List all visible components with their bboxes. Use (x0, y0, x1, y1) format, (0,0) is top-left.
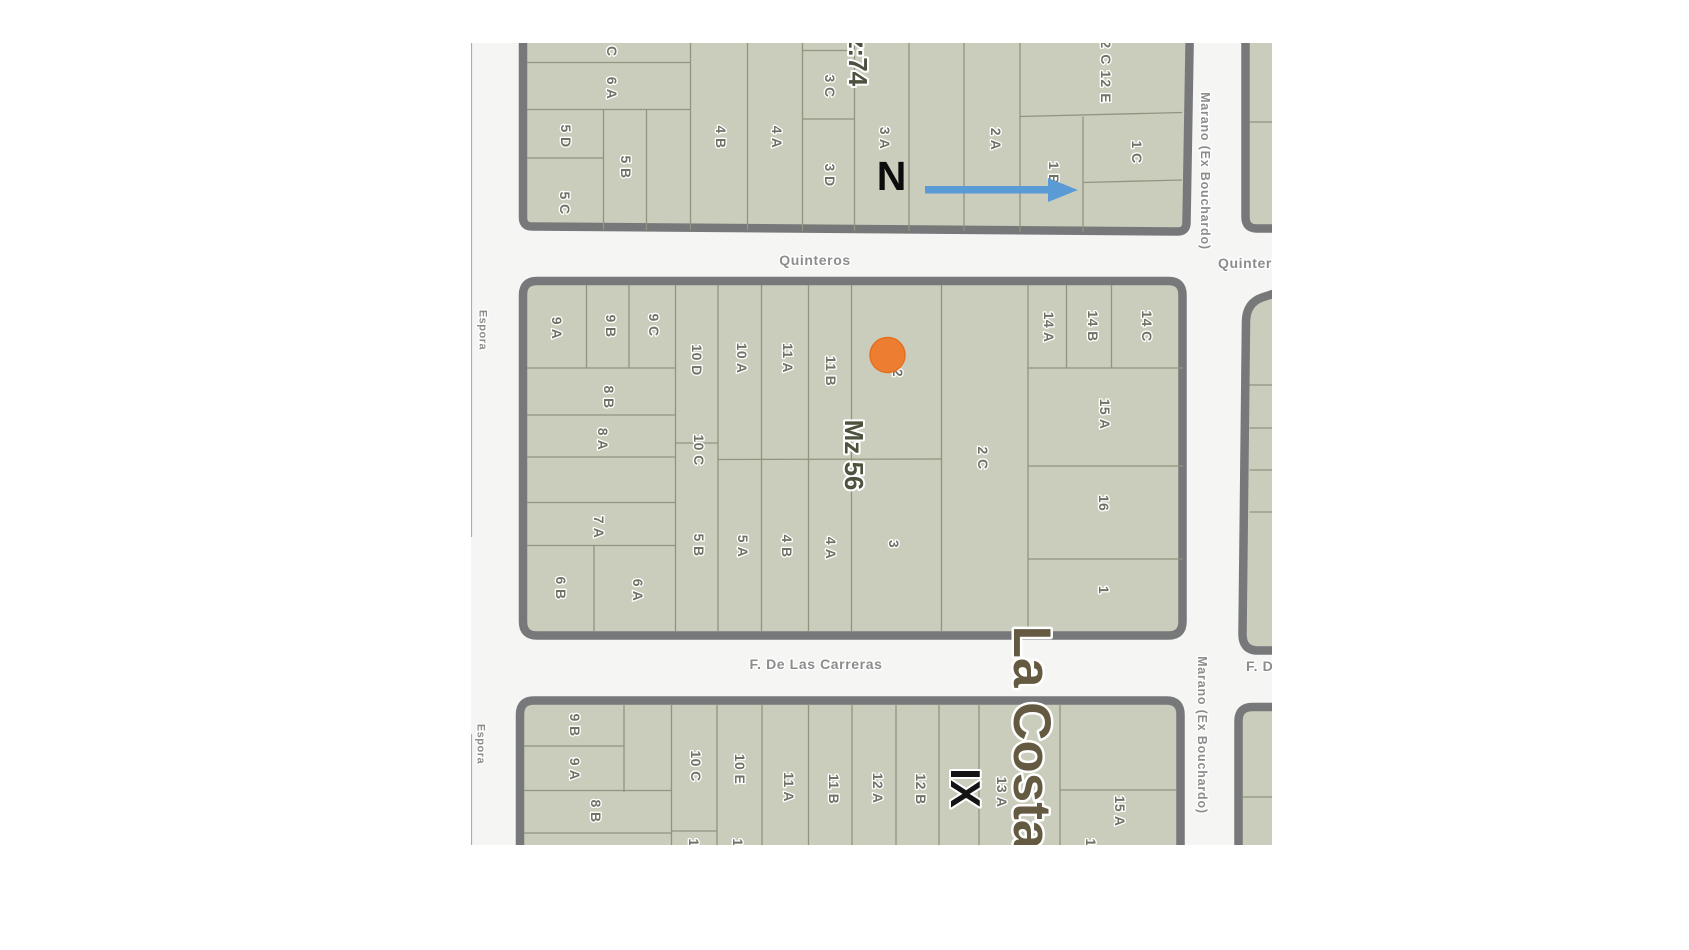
svg-text:5 C: 5 C (557, 192, 573, 215)
svg-text:Marano (Ex Bouchardo): Marano (Ex Bouchardo) (1195, 656, 1209, 814)
svg-text:10 D: 10 D (689, 344, 705, 375)
svg-text:12 A: 12 A (870, 773, 886, 804)
svg-text:5 A: 5 A (735, 535, 751, 557)
svg-text:5 B: 5 B (618, 156, 634, 179)
svg-text:11 B: 11 B (823, 356, 839, 386)
svg-text:14 B: 14 B (1085, 310, 1101, 341)
svg-text:3 C: 3 C (822, 75, 838, 98)
svg-text:Espora: Espora (475, 724, 487, 765)
svg-text:11 A: 11 A (780, 343, 796, 373)
svg-text:Quinteros: Quinteros (779, 252, 851, 268)
svg-text:10 E: 10 E (732, 754, 748, 784)
svg-text:10 C: 10 C (688, 750, 704, 781)
svg-text:5 D: 5 D (558, 125, 574, 148)
svg-text:9 B: 9 B (603, 315, 619, 338)
svg-text:10 C: 10 C (691, 434, 707, 465)
svg-text:6 A: 6 A (604, 77, 620, 99)
svg-text:8 B: 8 B (588, 800, 604, 823)
svg-text:11 B: 11 B (826, 774, 842, 804)
svg-text:8 A: 8 A (595, 428, 611, 450)
svg-text:4 A: 4 A (769, 126, 785, 148)
svg-text:Espora: Espora (477, 310, 489, 351)
svg-text:6 B: 6 B (553, 577, 569, 600)
svg-text:4 B: 4 B (713, 126, 729, 149)
svg-text:F. De Las Carreras: F. De Las Carreras (750, 656, 883, 672)
svg-text:3: 3 (886, 540, 902, 548)
svg-text:Mz 56: Mz 56 (839, 420, 869, 491)
svg-text:14 A: 14 A (1041, 312, 1057, 343)
svg-text:4 A: 4 A (823, 537, 839, 559)
svg-text:10 A: 10 A (734, 343, 750, 374)
svg-text:1: 1 (1096, 586, 1112, 594)
svg-text:2 C 12 E: 2 C 12 E (1098, 40, 1114, 103)
svg-text:6 A: 6 A (630, 579, 646, 601)
svg-text:3 D: 3 D (822, 164, 838, 187)
svg-text:2 C: 2 C (975, 447, 991, 470)
svg-text:16: 16 (1096, 495, 1112, 511)
svg-text:8 B: 8 B (601, 386, 617, 409)
svg-text:3 A: 3 A (877, 127, 893, 149)
svg-text:15 A: 15 A (1097, 399, 1113, 430)
svg-text:9 A: 9 A (567, 758, 583, 780)
svg-text:14 C: 14 C (1139, 310, 1155, 341)
svg-text:4 B: 4 B (779, 535, 795, 558)
svg-text:Marano (Ex Bouchardo): Marano (Ex Bouchardo) (1198, 92, 1212, 250)
svg-text:5 B: 5 B (691, 534, 707, 557)
svg-text:9 B: 9 B (567, 714, 583, 737)
svg-text:7 A: 7 A (591, 516, 607, 538)
svg-text:La Costa: La Costa (1002, 626, 1061, 850)
svg-text:N: N (877, 153, 907, 199)
svg-text:12 B: 12 B (913, 773, 929, 804)
svg-text:1 C: 1 C (1129, 141, 1145, 164)
svg-text:2 A: 2 A (988, 128, 1004, 150)
svg-text:15 A: 15 A (1112, 796, 1128, 827)
svg-text:IX: IX (942, 768, 989, 808)
svg-text:9 C: 9 C (646, 314, 662, 337)
svg-text:11 A: 11 A (781, 772, 797, 802)
svg-text:9 A: 9 A (549, 317, 565, 339)
